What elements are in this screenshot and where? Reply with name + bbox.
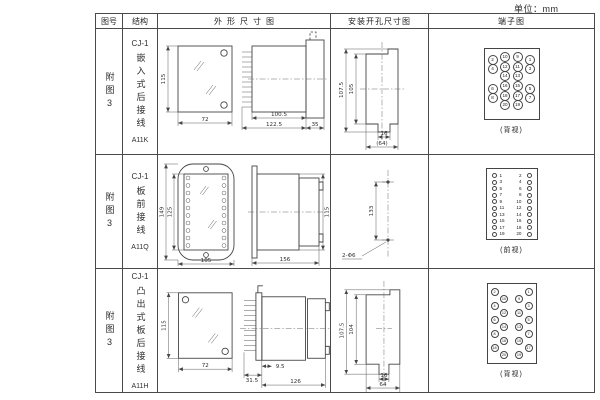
code-row1: A11K (132, 137, 149, 144)
terminal-circle: 9 (513, 52, 523, 62)
front-view: 115 72 (161, 46, 232, 126)
terminal-circle (492, 180, 497, 185)
terminal-circle: 13 (513, 71, 523, 81)
terminal-circle (492, 199, 497, 204)
terminal-circle: 1 (525, 55, 535, 65)
terminal-grid-2: 1357911131517192468101214161820 (486, 168, 538, 240)
terminal-number: 14 (513, 212, 522, 217)
terminal-grid-1: 2109141211314136161558181772019 (484, 48, 540, 120)
terminal-circle: 14 (500, 323, 508, 331)
r2-terminal-strip (186, 176, 226, 248)
terminal-circle: 7 (525, 330, 533, 338)
terminal-number: 18 (513, 225, 522, 230)
terminal-circle: 7 (525, 93, 535, 103)
terminal-circle: 18 (491, 344, 499, 352)
terminal-number: 4 (513, 179, 522, 184)
terminal-caption-row3: (背视) (500, 369, 523, 379)
terminal-circle (527, 180, 532, 185)
terminal-caption-row1: (背视) (500, 125, 523, 135)
install-drawing-row3: 107.5 104 16 64 (332, 269, 428, 392)
terminal-number: 8 (513, 192, 522, 197)
terminal-circle: 4 (491, 302, 499, 310)
dim-body-length: 126 (290, 379, 301, 385)
dim-front-width: 72 (201, 117, 208, 123)
outline-drawing-row1: 115 72 100.5 122.5 35 (158, 30, 331, 154)
terminal-circle: 12 (500, 62, 510, 72)
dim-total-width: 64 (379, 382, 387, 388)
header-fig-no: 图号 (96, 14, 123, 29)
manual-page: { "unit_label": "单位：mm", "headers": { "f… (0, 0, 600, 400)
cell-structure-row2: CJ-1 板前接线 A11Q (123, 155, 158, 269)
terminal-circle: 6 (488, 84, 498, 94)
terminal-circle (527, 212, 532, 217)
terminal-number: 20 (513, 231, 522, 236)
terminal-circle: 17 (525, 344, 533, 352)
terminal-number: 12 (513, 205, 522, 210)
fig-no-row2: 附图3 (105, 192, 114, 232)
dim-inner-height: 105 (349, 83, 355, 94)
dim-total-width: (64) (376, 141, 387, 147)
dim-front-depth: 31.5 (245, 378, 258, 384)
terminal-circle: 11 (515, 309, 523, 317)
type-row3: 凸出式板后接线 (136, 286, 145, 377)
terminal-circle: 16 (500, 337, 508, 345)
terminal-circle: 19 (515, 351, 523, 359)
terminal-circle: 3 (525, 64, 535, 74)
terminal-circle: 11 (513, 62, 523, 72)
terminal-circle (527, 186, 532, 191)
terminal-circle (492, 225, 497, 230)
cell-install-row1: 107.5 105 16 (64) (331, 29, 429, 155)
terminal-circle: 10 (500, 295, 508, 303)
terminal-number: 10 (513, 199, 522, 204)
terminal-circle (492, 186, 497, 191)
side-view: 156 115 (248, 166, 331, 266)
fig-no-row1: 附图3 (105, 72, 114, 112)
cell-terminal-row2: 1357911131517192468101214161820 (前视) (429, 155, 594, 269)
dim-inner-height: 104 (349, 324, 355, 335)
terminal-circle (492, 193, 497, 198)
terminal-circle (527, 173, 532, 178)
terminal-number: 15 (500, 218, 509, 223)
fig-no-row3: 附图3 (105, 311, 114, 351)
dim-front-inner-height: 125 (167, 206, 173, 217)
cell-fig-row2: 附图3 (96, 155, 123, 269)
terminal-number: 16 (513, 218, 522, 223)
cell-fig-row1: 附图3 (96, 29, 123, 155)
terminal-circle (492, 219, 497, 224)
terminal-circle: 14 (500, 71, 510, 81)
terminal-number: 6 (513, 186, 522, 191)
cell-structure-row1: CJ-1 嵌入式后接线 A11K (123, 29, 158, 155)
code-row2: A11Q (131, 244, 148, 251)
terminal-circle: 15 (515, 337, 523, 345)
type-row2: 板前接线 (136, 186, 145, 238)
model-row1: CJ-1 (132, 39, 149, 48)
model-row3: CJ-1 (132, 272, 149, 281)
terminal-circle: 3 (525, 302, 533, 310)
side-view: 9.5 31.5 126 (240, 286, 329, 388)
terminal-number: 7 (500, 192, 509, 197)
header-outline: 外形尺寸图 (158, 14, 331, 29)
dim-holes-label: 2-Φ6 (342, 253, 356, 259)
terminal-circle: 13 (515, 323, 523, 331)
terminal-circle: 16 (500, 81, 510, 91)
terminal-circle: 9 (515, 295, 523, 303)
terminal-caption-row2: (前视) (500, 245, 523, 255)
terminal-circle: 20 (500, 351, 508, 359)
terminal-circle: 18 (500, 91, 510, 101)
terminal-number: 5 (500, 186, 509, 191)
terminal-circle: 8 (488, 93, 498, 103)
terminal-circle: 6 (491, 316, 499, 324)
terminal-circle (527, 232, 532, 237)
dim-side-height: 115 (324, 206, 330, 217)
terminal-circle (527, 193, 532, 198)
cell-structure-row3: CJ-1 凸出式板后接线 A11H (123, 269, 158, 392)
dim-pin-depth: 9.5 (275, 364, 284, 370)
dim-front-outer-height: 149 (159, 206, 165, 217)
terminal-number: 1 (500, 173, 509, 178)
terminal-circle: 12 (500, 309, 508, 317)
terminal-number: 2 (513, 173, 522, 178)
dim-outer-height: 107.5 (339, 322, 345, 338)
install-drawing-row1: 107.5 105 16 (64) (332, 30, 428, 154)
terminal-number: 11 (500, 205, 509, 210)
dim-outer-height: 107.5 (339, 81, 345, 97)
cell-outline-row2: 149 125 105 156 115 (158, 155, 331, 269)
dim-front-width: 72 (201, 363, 208, 369)
cell-install-row3: 107.5 104 16 64 (331, 269, 429, 392)
terminal-circle (492, 212, 497, 217)
outline-drawing-row3: 115 72 9.5 31.5 126 (158, 269, 331, 392)
front-view: 115 72 (161, 293, 231, 372)
cell-install-row2: 133 2-Φ6 (331, 155, 429, 269)
dim-slot-width: 16 (380, 131, 388, 137)
terminal-number: 19 (500, 231, 509, 236)
header-structure: 结构 (123, 14, 158, 29)
cell-outline-row1: 115 72 100.5 122.5 35 (158, 29, 331, 155)
dim-front-width: 105 (200, 258, 211, 264)
dim-front-height: 115 (161, 73, 167, 84)
front-view: 149 125 105 (159, 164, 234, 266)
terminal-circle (492, 206, 497, 211)
terminal-circle (527, 219, 532, 224)
type-row1: 嵌入式后接线 (136, 53, 145, 131)
terminal-number: 17 (500, 225, 509, 230)
dim-hole-spacing: 133 (369, 205, 375, 216)
cell-fig-row3: 附图3 (96, 269, 123, 392)
terminal-circle: 4 (488, 64, 498, 74)
install-drawing-row2: 133 2-Φ6 (332, 156, 428, 268)
terminal-circle: 17 (513, 91, 523, 101)
terminal-circle: 5 (525, 316, 533, 324)
terminal-circle (527, 199, 532, 204)
cell-outline-row3: 115 72 9.5 31.5 126 (158, 269, 331, 392)
terminal-circle: 1 (525, 288, 533, 296)
terminal-grid-3: 2104126148161820193115137151719 (487, 283, 537, 364)
dim-front-height: 115 (161, 320, 167, 331)
model-row2: CJ-1 (132, 172, 149, 181)
terminal-circle: 2 (488, 55, 498, 65)
terminal-circle: 5 (525, 84, 535, 94)
terminal-circle (492, 232, 497, 237)
code-row3: A11H (132, 383, 149, 390)
terminal-circle: 10 (500, 52, 510, 62)
dim-flange-depth: 35 (311, 122, 319, 128)
terminal-circle: 19 (513, 100, 523, 110)
terminal-circle: 15 (513, 81, 523, 91)
spec-table: 图号 结构 外形尺寸图 安装开孔尺寸图 端子图 附图3 CJ-1 嵌入式后接线 … (95, 13, 595, 393)
terminal-number: 3 (500, 179, 509, 184)
terminal-number: 13 (500, 212, 509, 217)
terminal-circle (527, 206, 532, 211)
dim-body-length: 100.5 (270, 112, 286, 118)
terminal-number: 9 (500, 199, 509, 204)
terminal-circle: 20 (500, 100, 510, 110)
header-terminal: 端子图 (429, 14, 594, 29)
terminal-circle: 2 (491, 288, 499, 296)
dim-side-length: 156 (279, 257, 290, 263)
side-view: 100.5 122.5 35 (242, 32, 328, 130)
terminal-circle (527, 225, 532, 230)
cell-terminal-row1: 2109141211314136161558181772019 (背视) (429, 29, 594, 155)
dim-total-length: 122.5 (265, 122, 281, 128)
dim-slot-width: 16 (380, 373, 388, 379)
terminal-circle: 8 (491, 330, 499, 338)
header-install: 安装开孔尺寸图 (331, 14, 429, 29)
terminal-circle (492, 173, 497, 178)
outline-drawing-row2: 149 125 105 156 115 (158, 156, 331, 268)
cell-terminal-row3: 2104126148161820193115137151719 (背视) (429, 269, 594, 392)
